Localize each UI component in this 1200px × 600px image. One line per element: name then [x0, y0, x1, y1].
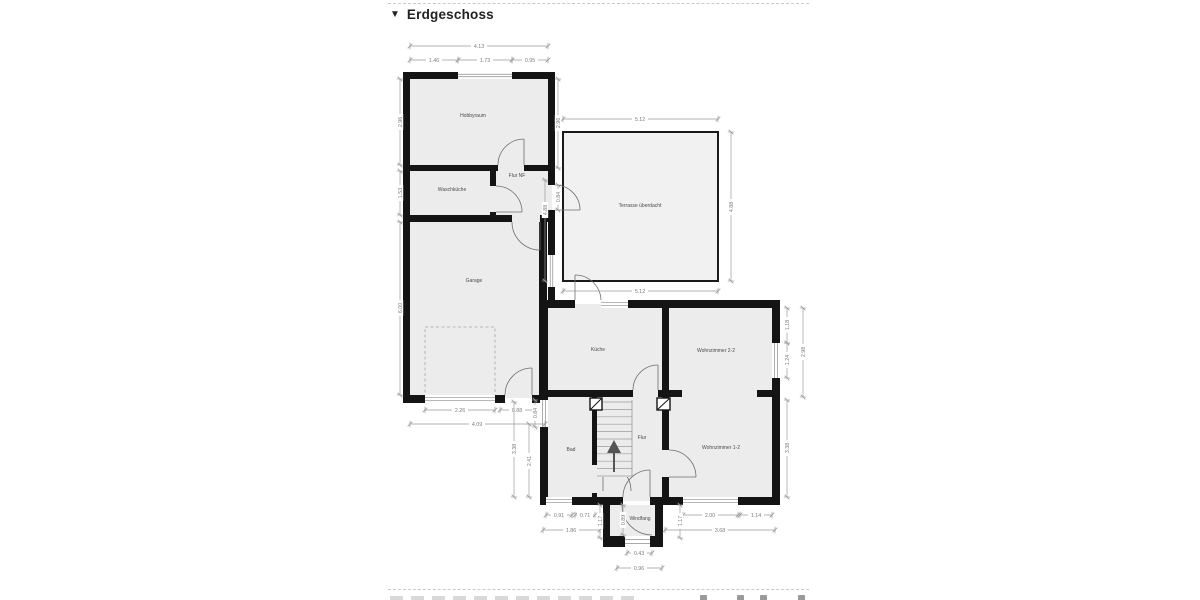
dimension-label: 1.18	[785, 320, 791, 330]
wall-segment	[540, 308, 548, 400]
room-label-wohnzimmer22: Wohnzimmer 2-2	[697, 348, 735, 354]
room-label-wohnzimmer12: Wohnzimmer 1-2	[702, 445, 740, 451]
dimension-label: 6.00	[398, 303, 404, 313]
room-windfang	[606, 505, 659, 541]
wall-segment	[662, 308, 669, 390]
room-label-flur: Flur	[638, 435, 647, 441]
wall-segment	[403, 165, 498, 171]
dimension-label: 0.88	[512, 408, 522, 414]
window	[772, 343, 780, 378]
wall-segment	[403, 79, 410, 403]
dimension-bad-height: 3.38	[511, 400, 518, 500]
clipped-icon	[737, 595, 744, 600]
room-waschkueche	[406, 168, 493, 218]
dimension-wasch-left: 1.53	[397, 169, 404, 218]
room-hobbyraum	[406, 75, 552, 168]
room-label-kueche: Küche	[591, 347, 605, 353]
wall-segment	[403, 395, 425, 403]
dimension-label: 0.96	[634, 566, 644, 572]
dimension-flurnf-door: 0.84	[555, 183, 562, 213]
dimension-label: 5.12	[635, 117, 645, 123]
dimension-label: 1.46	[429, 58, 439, 64]
dimension-wz12-corner: 1.14	[738, 512, 775, 519]
dimension-label: 0.91	[554, 513, 564, 519]
dimension-label: 0.43	[634, 551, 644, 557]
window	[540, 400, 548, 427]
wall-segment	[548, 287, 555, 300]
wall-segment	[772, 308, 780, 343]
dimension-label: 2.98	[801, 347, 807, 357]
clipped-icon	[700, 595, 707, 600]
clipped-icon	[798, 595, 805, 600]
clipped-footer-content	[0, 594, 1200, 600]
wall-segment	[524, 165, 555, 171]
dimension-bad-door-w: 0.71	[573, 512, 598, 519]
window	[548, 255, 555, 287]
wall-segment	[650, 497, 683, 505]
wall-segment	[403, 215, 512, 222]
room-label-garage: Garage	[466, 278, 483, 284]
dimension-label: 5.12	[635, 289, 645, 295]
dimension-bad-bottom: 1.86	[541, 527, 603, 534]
wall-segment	[650, 536, 663, 547]
clipped-text-fragment	[390, 596, 640, 600]
clipped-icon	[760, 595, 767, 600]
floorplan-svg: 4.131.461.730.955.125.122.260.884.090.91…	[0, 0, 1200, 600]
dimension-label: 1.86	[566, 528, 576, 534]
dimension-wz12-height: 3.38	[784, 398, 791, 500]
wall-segment	[628, 300, 780, 308]
dimension-windfang-right: 1.17	[677, 503, 684, 541]
dimension-label: 0.84	[533, 408, 539, 418]
wall-segment	[490, 212, 496, 215]
wall-segment	[548, 390, 633, 397]
chimney-block	[657, 398, 670, 410]
dimension-label: 1.14	[751, 513, 761, 519]
dimension-label: 3.68	[715, 528, 725, 534]
stairs	[597, 400, 632, 477]
dimension-label: 4.09	[472, 422, 482, 428]
wall-segment	[603, 536, 625, 547]
dimension-hobby-right: 2.96	[555, 77, 562, 171]
wall-segment	[772, 378, 780, 505]
dimension-windfang-door: 0.43	[625, 550, 655, 557]
dimension-label: 1.17	[678, 516, 684, 526]
dimension-windfang-bottom: 0.96	[615, 565, 665, 572]
dimension-top-left: 1.46	[408, 57, 461, 64]
wall-segment	[512, 72, 555, 79]
dimension-wz22-window: 1.24	[784, 341, 791, 381]
dimension-label: 3.38	[512, 444, 518, 454]
wall-segment	[572, 497, 623, 505]
dimension-garage-door: 2.26	[423, 407, 498, 414]
room-label-windfang: Windfang	[629, 516, 650, 522]
dimension-label: 1.17	[598, 516, 604, 526]
wall-segment	[490, 171, 496, 186]
room-label-bad: Bad	[567, 447, 576, 453]
dimension-top-total: 4.13	[408, 43, 551, 50]
dimension-label: 1.73	[480, 58, 490, 64]
dimension-wz12-window: 2.00	[681, 512, 741, 519]
dimension-label: 2.41	[527, 456, 533, 466]
wall-segment	[592, 493, 597, 497]
wall-segment	[548, 171, 555, 185]
dimension-terrace-top: 5.12	[561, 116, 721, 123]
wall-segment	[403, 72, 458, 79]
wall-segment	[540, 497, 546, 505]
dimension-label: 0.71	[580, 513, 590, 519]
wall-segment	[548, 79, 555, 165]
dimension-label: 4.13	[474, 44, 484, 50]
dimension-label: 0.89	[621, 515, 627, 525]
wall-segment	[540, 300, 575, 308]
room-garage	[406, 218, 542, 398]
section-separator-bottom	[388, 589, 809, 590]
window	[683, 497, 738, 505]
dimension-label: 3.38	[785, 443, 791, 453]
dimension-bad-window-w: 0.91	[544, 512, 575, 519]
window	[458, 72, 512, 79]
dimension-top-mid: 1.73	[456, 57, 515, 64]
room-label-flur-nf: Flur NF	[509, 173, 526, 179]
dimension-label: 2.96	[398, 117, 404, 127]
wall-segment	[548, 215, 555, 255]
window	[601, 300, 628, 308]
wall-segment	[548, 210, 555, 215]
chimney-block	[590, 398, 602, 410]
dimension-top-right: 0.95	[510, 57, 551, 64]
dimension-garage-exit: 0.88	[498, 407, 537, 414]
dimension-label: 2.26	[455, 408, 465, 414]
dimension-hobby-left: 2.96	[397, 77, 404, 168]
room-label-hobbyraum: Hobbyraum	[460, 113, 486, 119]
dimension-bad-inner: 2.41	[526, 422, 533, 500]
dimension-wz22-upper: 1.18	[784, 306, 791, 346]
window	[425, 395, 495, 403]
dimension-label: 0.84	[556, 192, 562, 202]
dimension-windfang-left: 1.17	[597, 503, 604, 541]
wall-segment	[738, 497, 780, 505]
wall-segment	[658, 390, 682, 397]
dimension-label: 1.24	[785, 355, 791, 365]
dimension-label: 4.88	[543, 205, 549, 215]
dimension-label: 1.53	[398, 188, 404, 198]
dimension-wz22-height: 2.98	[800, 306, 807, 400]
wall-segment	[495, 395, 505, 403]
dimension-label: 0.95	[525, 58, 535, 64]
room-label-waschkueche: Waschküche	[438, 187, 467, 193]
window	[625, 536, 650, 547]
wall-segment	[757, 390, 780, 397]
room-label-terrasse: Terrasse überdacht	[619, 203, 662, 209]
dimension-label: 2.96	[556, 118, 562, 128]
dimension-label: 4.88	[729, 202, 735, 212]
window	[546, 497, 572, 505]
dimension-terrace-bottom: 5.12	[561, 288, 721, 295]
floorplan-page: ▼ Erdgeschoss	[0, 0, 1200, 600]
wall-segment	[540, 427, 548, 505]
wall-segment	[662, 477, 669, 497]
dimension-label: 2.00	[705, 513, 715, 519]
dimension-terrace-right: 4.88	[728, 130, 735, 284]
dimension-garage-left: 6.00	[397, 220, 404, 398]
